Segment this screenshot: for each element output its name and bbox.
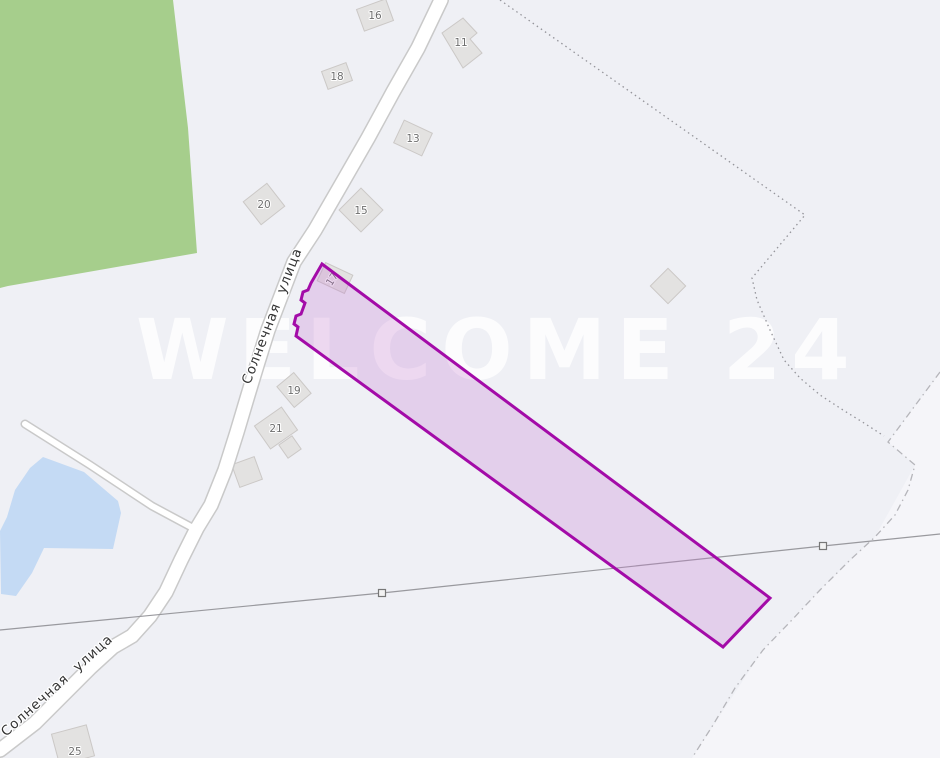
- green-area: [0, 0, 197, 288]
- map-svg: WELCOME 24161118132015192125Солнечная ул…: [0, 0, 940, 758]
- building-label: 16: [368, 10, 382, 22]
- power-line-marker: [820, 543, 827, 550]
- building-label: 19: [287, 385, 300, 397]
- map-canvas[interactable]: WELCOME 24161118132015192125Солнечная ул…: [0, 0, 940, 758]
- building-label: 15: [354, 205, 367, 217]
- building-label: 21: [269, 423, 282, 435]
- building-label: 20: [257, 199, 270, 211]
- building-label: 13: [406, 133, 419, 145]
- building-label: 11: [454, 37, 467, 49]
- building-label: 18: [330, 71, 343, 83]
- power-line-marker: [379, 590, 386, 597]
- building-label: 25: [68, 746, 81, 758]
